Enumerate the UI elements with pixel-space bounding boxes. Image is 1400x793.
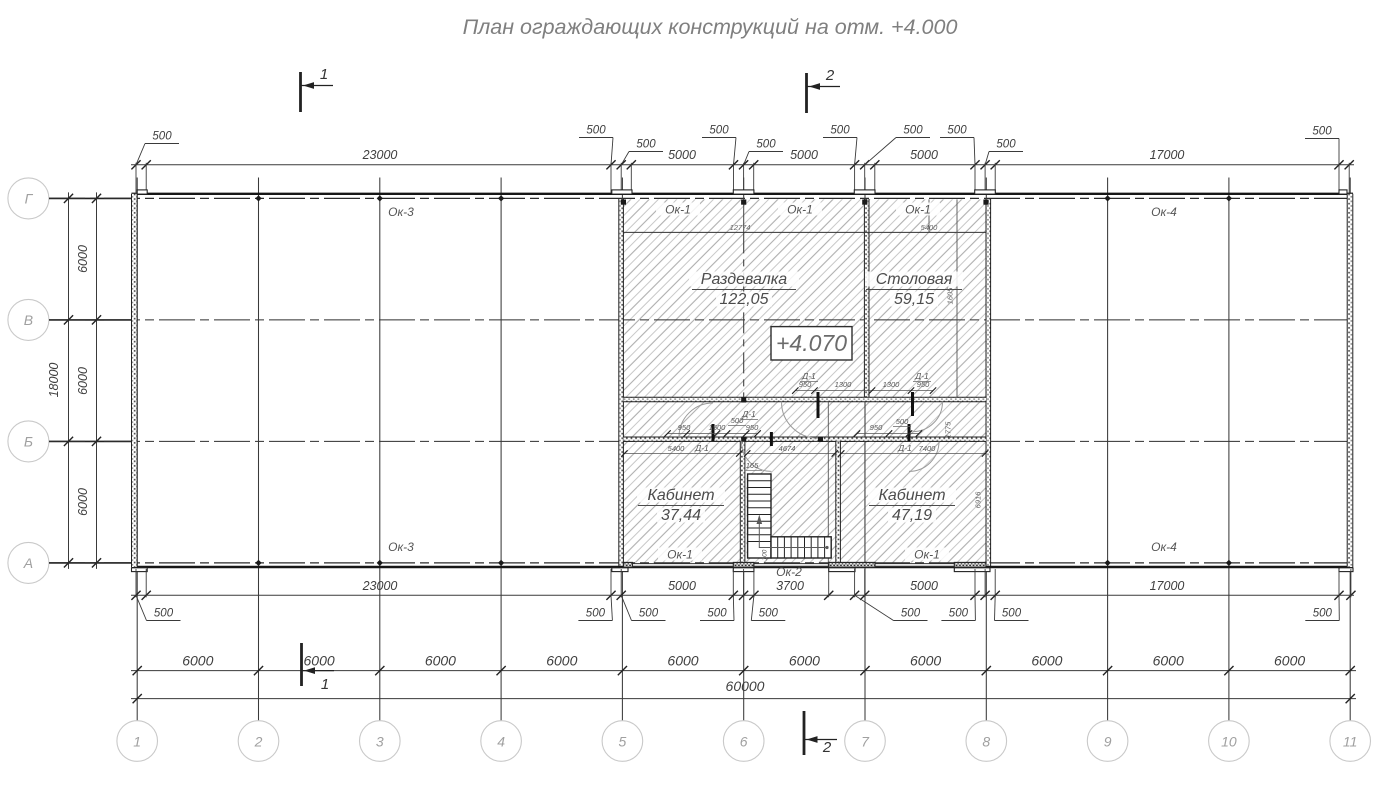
svg-text:6000: 6000 <box>1153 653 1184 669</box>
svg-text:500: 500 <box>1312 126 1332 138</box>
svg-text:500: 500 <box>586 608 606 620</box>
svg-text:Д-1: Д-1 <box>897 443 912 453</box>
svg-text:950: 950 <box>678 423 691 432</box>
svg-text:5000: 5000 <box>668 579 696 593</box>
svg-text:План ограждающих конструкций н: План ограждающих конструкций на отм. +4.… <box>463 15 958 39</box>
svg-text:5400: 5400 <box>668 444 686 453</box>
svg-text:4: 4 <box>497 734 505 750</box>
svg-text:12774: 12774 <box>730 223 751 232</box>
svg-text:500: 500 <box>154 608 174 620</box>
svg-text:7: 7 <box>861 734 870 750</box>
svg-text:Ок-1: Ок-1 <box>914 548 940 562</box>
svg-text:Ок-1: Ок-1 <box>905 203 931 217</box>
svg-text:2: 2 <box>825 67 835 84</box>
svg-text:500: 500 <box>707 608 727 620</box>
svg-text:1300: 1300 <box>835 380 853 389</box>
svg-text:Ок-1: Ок-1 <box>667 548 693 562</box>
svg-text:6000: 6000 <box>546 653 577 669</box>
svg-text:500: 500 <box>996 139 1016 151</box>
svg-text:6000: 6000 <box>425 653 456 669</box>
svg-text:18000: 18000 <box>47 363 61 398</box>
svg-text:6000: 6000 <box>76 488 90 516</box>
svg-text:Кабинет: Кабинет <box>647 487 714 504</box>
svg-text:1605: 1605 <box>946 287 955 305</box>
svg-text:6000: 6000 <box>76 367 90 395</box>
svg-text:Ок-1: Ок-1 <box>665 203 691 217</box>
svg-text:3: 3 <box>376 734 384 750</box>
svg-text:100: 100 <box>762 549 769 560</box>
svg-text:Столовая: Столовая <box>876 271 953 288</box>
svg-text:500: 500 <box>586 125 606 137</box>
svg-text:6: 6 <box>740 734 748 750</box>
svg-text:23000: 23000 <box>362 579 398 593</box>
svg-text:1775: 1775 <box>944 421 953 439</box>
svg-text:9: 9 <box>1104 734 1112 750</box>
svg-text:500: 500 <box>830 125 850 137</box>
svg-text:1: 1 <box>133 734 141 750</box>
svg-text:5000: 5000 <box>910 579 938 593</box>
svg-text:Б: Б <box>24 433 33 449</box>
svg-text:10: 10 <box>1221 734 1237 750</box>
svg-text:Ок-1: Ок-1 <box>787 203 813 217</box>
svg-text:6916: 6916 <box>974 491 983 509</box>
svg-text:500: 500 <box>1313 608 1333 620</box>
svg-text:6000: 6000 <box>789 653 820 669</box>
svg-text:165: 165 <box>746 461 759 470</box>
svg-text:47,19: 47,19 <box>892 507 932 524</box>
svg-text:59,15: 59,15 <box>894 291 934 308</box>
svg-text:950: 950 <box>870 423 883 432</box>
svg-text:6000: 6000 <box>910 653 941 669</box>
svg-text:500: 500 <box>896 417 909 426</box>
svg-text:5: 5 <box>619 734 627 750</box>
svg-text:37,44: 37,44 <box>661 507 701 524</box>
svg-text:6000: 6000 <box>304 653 335 669</box>
svg-text:500: 500 <box>756 139 776 151</box>
svg-text:500: 500 <box>639 608 659 620</box>
svg-text:8: 8 <box>982 734 990 750</box>
svg-text:Ок-4: Ок-4 <box>1151 540 1177 554</box>
svg-text:2: 2 <box>254 734 263 750</box>
svg-text:5000: 5000 <box>790 148 818 162</box>
svg-text:6000: 6000 <box>1274 653 1305 669</box>
svg-text:Кабинет: Кабинет <box>878 487 945 504</box>
svg-text:Раздевалка: Раздевалка <box>701 271 788 288</box>
svg-text:5400: 5400 <box>921 223 939 232</box>
svg-text:Д-1: Д-1 <box>694 443 709 453</box>
svg-text:500: 500 <box>759 608 779 620</box>
svg-text:17000: 17000 <box>1150 579 1185 593</box>
svg-text:1500: 1500 <box>709 423 727 432</box>
svg-text:Ок-3: Ок-3 <box>388 540 414 554</box>
svg-text:Д-1: Д-1 <box>914 371 929 381</box>
svg-text:500: 500 <box>709 125 729 137</box>
svg-text:+4.070: +4.070 <box>776 330 847 356</box>
svg-text:7400: 7400 <box>919 444 937 453</box>
svg-text:500: 500 <box>901 608 921 620</box>
svg-text:500: 500 <box>947 125 967 137</box>
svg-text:3700: 3700 <box>776 579 804 593</box>
svg-text:122,05: 122,05 <box>720 291 769 308</box>
svg-text:6000: 6000 <box>667 653 698 669</box>
svg-text:500: 500 <box>152 131 172 143</box>
svg-text:500: 500 <box>903 125 923 137</box>
svg-text:6000: 6000 <box>1031 653 1062 669</box>
svg-text:500: 500 <box>636 139 656 151</box>
svg-text:1: 1 <box>320 66 328 83</box>
svg-text:2: 2 <box>822 739 832 756</box>
svg-text:Ок-2: Ок-2 <box>776 565 802 579</box>
svg-text:А: А <box>23 555 33 571</box>
svg-text:23000: 23000 <box>362 148 398 162</box>
svg-text:6000: 6000 <box>76 245 90 273</box>
svg-text:950: 950 <box>746 423 759 432</box>
svg-text:Ок-3: Ок-3 <box>388 205 414 219</box>
svg-text:1300: 1300 <box>883 380 901 389</box>
svg-text:500: 500 <box>1002 608 1022 620</box>
svg-text:1: 1 <box>321 676 329 693</box>
svg-text:5000: 5000 <box>910 148 938 162</box>
svg-text:Д-1: Д-1 <box>741 409 756 419</box>
svg-text:17000: 17000 <box>1150 148 1185 162</box>
svg-text:6000: 6000 <box>182 653 213 669</box>
svg-text:В: В <box>24 312 33 328</box>
svg-text:Д-1: Д-1 <box>801 371 816 381</box>
svg-text:500: 500 <box>949 608 969 620</box>
svg-text:Ок-4: Ок-4 <box>1151 205 1177 219</box>
svg-text:5000: 5000 <box>668 148 696 162</box>
svg-text:11: 11 <box>1343 734 1358 750</box>
svg-text:60000: 60000 <box>726 678 765 694</box>
svg-text:4674: 4674 <box>779 444 796 453</box>
